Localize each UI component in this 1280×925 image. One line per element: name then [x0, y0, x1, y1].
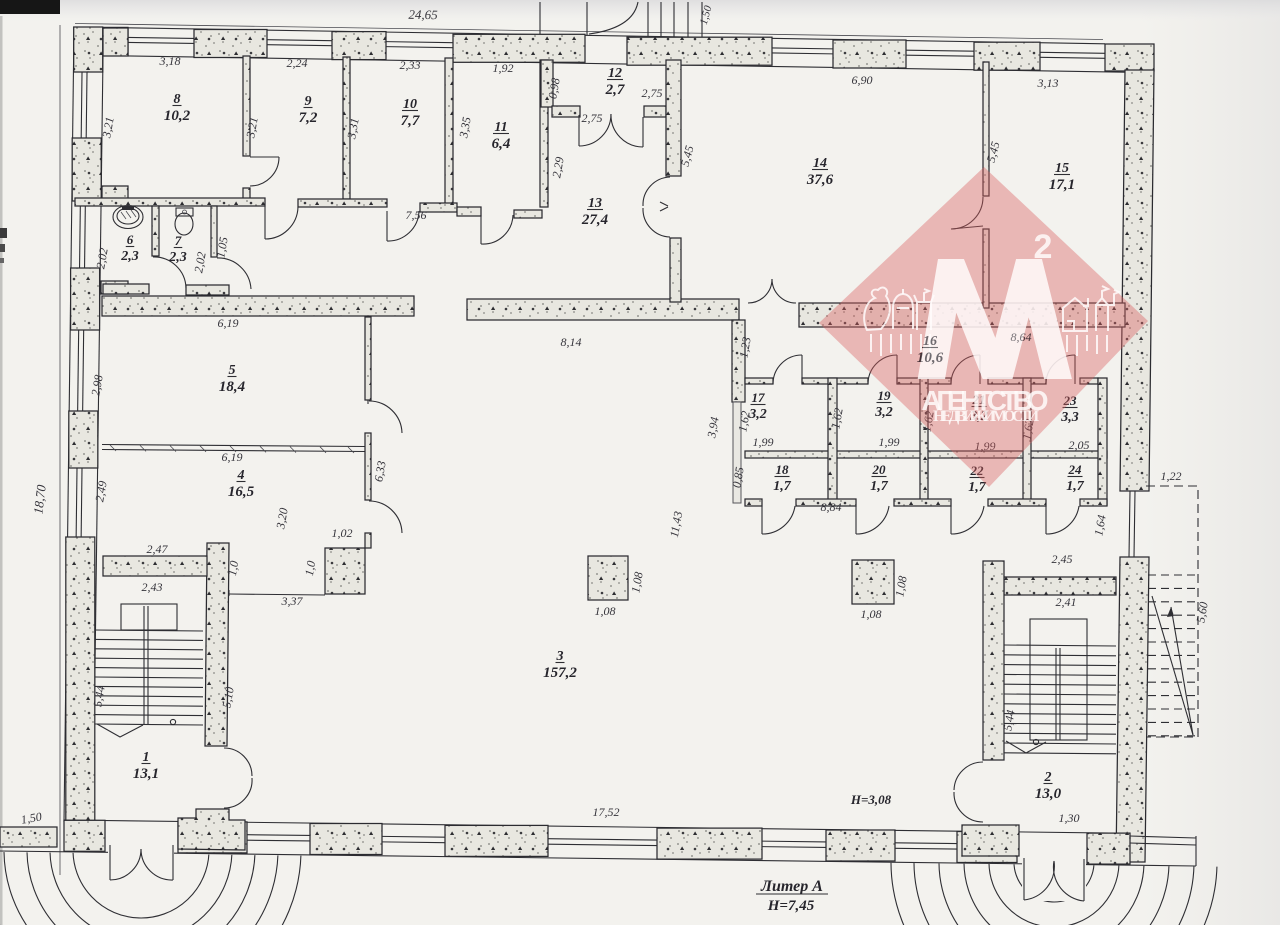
svg-text:24,65: 24,65: [408, 7, 438, 22]
svg-text:37,6: 37,6: [806, 172, 834, 188]
svg-text:Н=3,08: Н=3,08: [850, 792, 892, 807]
svg-text:13: 13: [588, 196, 602, 211]
svg-text:1,7: 1,7: [870, 479, 889, 494]
svg-text:2,3: 2,3: [120, 249, 139, 264]
svg-text:10: 10: [403, 97, 417, 112]
svg-text:7,56: 7,56: [406, 208, 427, 222]
svg-text:8: 8: [174, 92, 181, 107]
svg-text:14: 14: [813, 156, 827, 171]
svg-text:1,08: 1,08: [595, 604, 616, 618]
svg-text:3,2: 3,2: [748, 407, 767, 422]
svg-text:5: 5: [229, 363, 236, 378]
svg-text:18,4: 18,4: [219, 379, 246, 395]
svg-text:2: 2: [1044, 770, 1052, 785]
svg-text:7,7: 7,7: [401, 113, 420, 129]
svg-text:8,84: 8,84: [821, 500, 842, 514]
svg-text:8,64: 8,64: [1011, 330, 1032, 344]
svg-text:13,1: 13,1: [133, 766, 159, 782]
svg-text:1,08: 1,08: [861, 607, 882, 621]
svg-text:2,75: 2,75: [642, 86, 663, 100]
svg-text:10,2: 10,2: [164, 108, 191, 124]
svg-text:18: 18: [776, 462, 790, 477]
svg-text:1,7: 1,7: [968, 480, 987, 495]
svg-text:1,02: 1,02: [332, 526, 353, 540]
svg-text:2,47: 2,47: [147, 542, 169, 556]
svg-text:2,24: 2,24: [287, 56, 308, 70]
svg-text:6,19: 6,19: [218, 316, 239, 330]
svg-text:1,7: 1,7: [773, 479, 792, 494]
svg-text:16: 16: [923, 334, 937, 349]
svg-text:157,2: 157,2: [543, 665, 577, 681]
svg-text:6,90: 6,90: [852, 73, 873, 87]
svg-text:1,0: 1,0: [225, 560, 241, 577]
svg-text:13,0: 13,0: [1035, 786, 1062, 802]
svg-text:12: 12: [608, 66, 622, 81]
svg-text:10,6: 10,6: [917, 350, 944, 366]
svg-text:20: 20: [872, 462, 887, 477]
svg-text:6,19: 6,19: [222, 450, 243, 464]
svg-text:6: 6: [127, 232, 134, 247]
svg-text:27,4: 27,4: [581, 212, 609, 228]
svg-text:17: 17: [752, 390, 766, 405]
svg-text:1,30: 1,30: [1059, 811, 1080, 825]
svg-text:6,4: 6,4: [492, 136, 511, 152]
svg-text:1,7: 1,7: [1066, 479, 1085, 494]
svg-text:2,43: 2,43: [142, 580, 163, 594]
svg-text:2,7: 2,7: [605, 82, 625, 98]
svg-text:9: 9: [305, 94, 312, 109]
svg-text:2,3: 2,3: [168, 250, 187, 265]
svg-text:17,1: 17,1: [1049, 177, 1075, 193]
svg-text:2: 2: [1034, 228, 1053, 266]
svg-text:2,41: 2,41: [1056, 595, 1077, 609]
svg-text:8,14: 8,14: [561, 335, 582, 349]
svg-text:4: 4: [237, 468, 245, 483]
svg-text:11: 11: [494, 120, 507, 135]
svg-text:2,45: 2,45: [1052, 552, 1073, 566]
svg-text:2,05: 2,05: [1069, 438, 1090, 452]
svg-text:2,75: 2,75: [582, 111, 603, 125]
svg-text:15: 15: [1055, 161, 1069, 176]
svg-text:Литер А: Литер А: [760, 878, 823, 895]
svg-text:3: 3: [556, 649, 564, 664]
svg-text:1: 1: [143, 750, 150, 765]
svg-text:1,92: 1,92: [493, 61, 514, 75]
svg-text:НЕДВИЖИМОСТИ: НЕДВИЖИМОСТИ: [933, 408, 1039, 425]
svg-text:Н=7,45: Н=7,45: [767, 898, 815, 914]
svg-text:3,18: 3,18: [159, 54, 181, 68]
svg-text:7,2: 7,2: [299, 110, 318, 126]
svg-text:16,5: 16,5: [228, 484, 255, 500]
svg-text:1,0: 1,0: [302, 560, 318, 577]
svg-text:3,2: 3,2: [874, 405, 893, 420]
svg-text:7: 7: [175, 233, 182, 248]
svg-text:3,37: 3,37: [281, 594, 304, 608]
svg-text:17,52: 17,52: [593, 805, 620, 819]
svg-text:24: 24: [1068, 462, 1083, 477]
svg-text:1,22: 1,22: [1161, 469, 1182, 483]
svg-text:1,99: 1,99: [879, 435, 900, 449]
svg-text:2,33: 2,33: [400, 58, 421, 72]
svg-text:3,13: 3,13: [1037, 76, 1059, 90]
svg-text:1,99: 1,99: [753, 435, 774, 449]
svg-text:3,3: 3,3: [1060, 410, 1079, 425]
